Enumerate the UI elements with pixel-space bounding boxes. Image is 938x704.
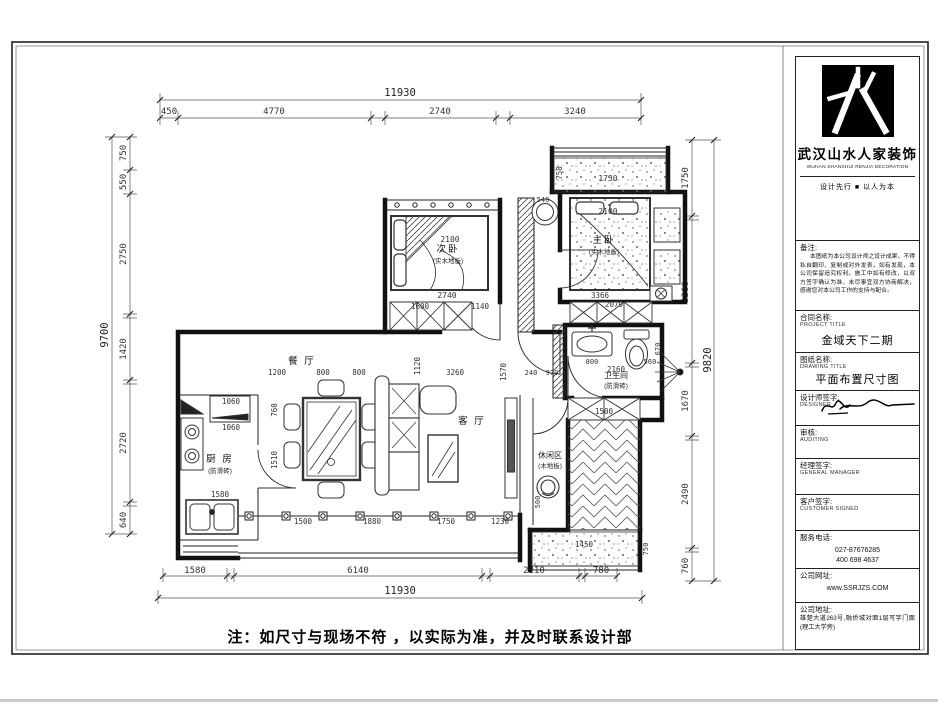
remark-text: 本图纸为本公司设计师之设计成果，不得私自翻印、复制或对外发表，如有发现，本公司保… <box>800 253 915 296</box>
remark-label: 备注: <box>800 243 915 252</box>
dim-label: 760 <box>681 558 691 574</box>
drawing-label-en: DRAWING TITLE <box>800 364 915 371</box>
dim-label: 2210 <box>523 566 545 576</box>
dim-label: 2740 <box>429 107 451 117</box>
customer-section: 客户签字: CUSTOMER SIGNED <box>796 495 919 531</box>
svg-text:1580: 1580 <box>211 490 230 499</box>
svg-text:1200: 1200 <box>268 368 287 377</box>
address-section: 公司地址: 雄楚大道263号,融侨城对面1层写字门面(理工大学旁) <box>796 603 919 649</box>
svg-text:3366: 3366 <box>591 291 610 300</box>
room-note: (防滑砖) <box>604 381 628 390</box>
svg-text:3260: 3260 <box>446 368 465 377</box>
dim-label: 550 <box>119 174 129 190</box>
dim-label: 6140 <box>347 566 369 576</box>
svg-text:2100: 2100 <box>598 207 617 216</box>
dim-label: 750 <box>119 145 129 161</box>
svg-text:1120: 1120 <box>413 356 422 375</box>
dim-label: 1750 <box>681 167 691 189</box>
project-label-en: PROJECT TITLE <box>800 322 915 329</box>
drawing-title-section: 图纸名称: DRAWING TITLE 平面布置尺寸图 <box>796 353 919 391</box>
svg-text:1570: 1570 <box>499 362 508 381</box>
dim-label: 2490 <box>681 483 691 505</box>
svg-text:800: 800 <box>586 358 599 366</box>
website-section: 公司网址: www.SSRJZS.COM <box>796 569 919 603</box>
room-label: 餐 厅 <box>288 355 316 367</box>
customer-label: 客户签字: <box>800 497 915 506</box>
room-label: 休闲区 <box>538 450 562 460</box>
dim-label: 3240 <box>564 107 586 117</box>
audit-section: 审核: AUDITING <box>796 426 919 459</box>
designer-signature <box>818 397 918 417</box>
svg-text:2160: 2160 <box>607 365 626 374</box>
master-nightstands <box>654 208 680 284</box>
customer-label-en: CUSTOMER SIGNED <box>800 506 915 513</box>
svg-text:1500: 1500 <box>294 517 313 526</box>
svg-text:1730: 1730 <box>598 174 617 183</box>
tv-cabinet <box>505 398 517 498</box>
dim-label: 9700 <box>99 322 111 347</box>
phone-number: 027-87676285 400 698 4637 <box>800 546 915 566</box>
dim-label: 9820 <box>702 347 714 372</box>
website-url: www.SSRJZS.COM <box>800 584 915 594</box>
dim-label: 11930 <box>384 585 416 597</box>
dim-label: 640 <box>119 512 129 528</box>
service-balcony-floor <box>532 532 638 566</box>
manager-label-en: GENERAL MANAGER <box>800 470 915 477</box>
svg-text:750: 750 <box>642 543 650 556</box>
exhaust-fan-icon <box>655 352 683 392</box>
room-note: (实木地板) <box>589 247 619 256</box>
round-stool <box>537 476 559 498</box>
project-name: 金域天下二期 <box>800 332 915 348</box>
hatched-wall <box>518 198 534 332</box>
ac-unit <box>650 286 672 301</box>
phone-label: 服务电话: <box>800 533 915 542</box>
room-label: 次卧 <box>436 243 459 255</box>
window-second-bedroom <box>385 200 500 210</box>
phone-number-1: 027-87676285 <box>800 546 915 556</box>
svg-text:970: 970 <box>546 369 559 377</box>
company-name-en: WUHAN SHANSHUI RENJIA DECORATION <box>807 165 909 170</box>
dim-label: 2720 <box>119 432 129 454</box>
title-block: 武汉山水人家装饰 WUHAN SHANSHUI RENJIA DECORATIO… <box>795 56 920 650</box>
phone-number-2: 400 698 4637 <box>800 556 915 566</box>
manager-label: 经理签字: <box>800 461 915 470</box>
room-label: 客 厅 <box>458 415 486 427</box>
svg-text:560: 560 <box>644 358 657 366</box>
svg-text:1140: 1140 <box>471 302 490 311</box>
company-slogan: 设计先行 ■ 以人为本 <box>800 176 915 192</box>
herringbone-deck <box>568 420 640 530</box>
svg-text:2740: 2740 <box>437 291 456 300</box>
remark-section: 备注: 本图纸为本公司设计师之设计成果，不得私自翻印、复制或对外发表，如有发现，… <box>796 241 919 311</box>
designer-section: 设计师签字: DESIGNER <box>796 391 919 426</box>
svg-text:1060: 1060 <box>222 397 241 406</box>
svg-text:2100: 2100 <box>440 235 459 244</box>
address-label: 公司地址: <box>800 605 915 614</box>
project-label: 合同名称: <box>800 313 915 322</box>
dim-label: 4770 <box>263 107 285 117</box>
dim-label: 11930 <box>384 87 416 99</box>
hatched-wall <box>553 325 565 398</box>
address-text: 雄楚大道263号,融侨城对面1层写字门面(理工大学旁) <box>800 615 915 632</box>
svg-text:1510: 1510 <box>270 450 279 469</box>
svg-text:750: 750 <box>555 166 564 180</box>
room-note: (实木地板) <box>433 256 463 265</box>
svg-text:1500: 1500 <box>595 407 614 416</box>
svg-text:1230: 1230 <box>491 517 510 526</box>
dim-label: 1670 <box>681 390 691 412</box>
kitchen-fixtures <box>181 396 250 534</box>
audit-label: 审核: <box>800 428 915 437</box>
svg-text:1600: 1600 <box>411 302 430 311</box>
room-note: (木地板) <box>538 461 562 470</box>
site-note: 注：如尺寸与现场不符 ，以实际为准，并及时联系设计部 <box>150 626 710 647</box>
room-note: (防滑砖) <box>208 466 232 475</box>
manager-section: 经理签字: GENERAL MANAGER <box>796 459 919 495</box>
svg-text:540: 540 <box>537 196 550 204</box>
drawing-sheet: 11930 450 4770 2740 3240 11930 1580 6140… <box>0 0 938 704</box>
svg-text:1060: 1060 <box>222 423 241 432</box>
dim-label: 1580 <box>184 566 206 576</box>
svg-text:1880: 1880 <box>363 517 382 526</box>
svg-text:800: 800 <box>316 368 330 377</box>
svg-text:800: 800 <box>352 368 366 377</box>
phone-section: 服务电话: 027-87676285 400 698 4637 <box>796 531 919 569</box>
sheet-border <box>12 42 928 654</box>
dim-label: 780 <box>593 566 609 576</box>
room-label: 主卧 <box>592 234 615 246</box>
svg-text:240: 240 <box>525 369 538 377</box>
website-label: 公司网址: <box>800 571 915 580</box>
project-section: 合同名称: PROJECT TITLE 金域天下二期 <box>796 311 919 353</box>
page-edge <box>0 699 938 702</box>
logo-section: 武汉山水人家装饰 WUHAN SHANSHUI RENJIA DECORATIO… <box>796 57 919 241</box>
toilet-icon <box>624 330 649 339</box>
svg-text:1450: 1450 <box>575 540 594 549</box>
coffee-table <box>428 435 458 482</box>
drawing-name: 平面布置尺寸图 <box>800 371 915 387</box>
dim-label: 450 <box>161 107 177 117</box>
dim-label: 2750 <box>119 243 129 265</box>
svg-text:2070: 2070 <box>605 300 624 309</box>
svg-text:670: 670 <box>654 343 662 356</box>
audit-label-en: AUDITING <box>800 437 915 444</box>
svg-text:500: 500 <box>534 496 542 509</box>
dim-label: 1420 <box>119 338 129 360</box>
company-name: 武汉山水人家装饰 <box>798 143 918 163</box>
svg-text:1750: 1750 <box>437 517 456 526</box>
drawing-label: 图纸名称: <box>800 355 915 364</box>
dining-table <box>284 380 378 498</box>
company-logo-icon <box>822 65 894 137</box>
svg-text:760: 760 <box>270 403 279 417</box>
room-label: 厨 房 <box>206 453 234 465</box>
